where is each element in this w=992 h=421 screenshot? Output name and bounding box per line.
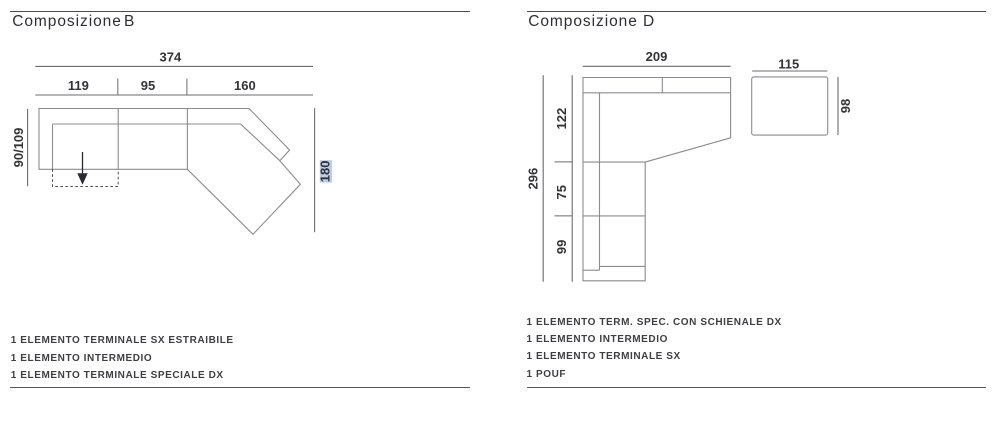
svg-text:122: 122 xyxy=(554,108,569,130)
svg-text:296: 296 xyxy=(525,168,540,190)
svg-text:160: 160 xyxy=(234,78,256,93)
svg-text:115: 115 xyxy=(778,56,799,71)
svg-text:374: 374 xyxy=(160,49,182,64)
svg-text:119: 119 xyxy=(68,78,89,93)
svg-text:75: 75 xyxy=(554,185,569,199)
svg-text:180: 180 xyxy=(318,161,333,183)
svg-text:90/109: 90/109 xyxy=(11,128,26,168)
svg-text:209: 209 xyxy=(646,49,668,64)
svg-text:98: 98 xyxy=(838,99,853,113)
svg-text:99: 99 xyxy=(554,240,569,254)
svg-text:95: 95 xyxy=(141,78,155,93)
